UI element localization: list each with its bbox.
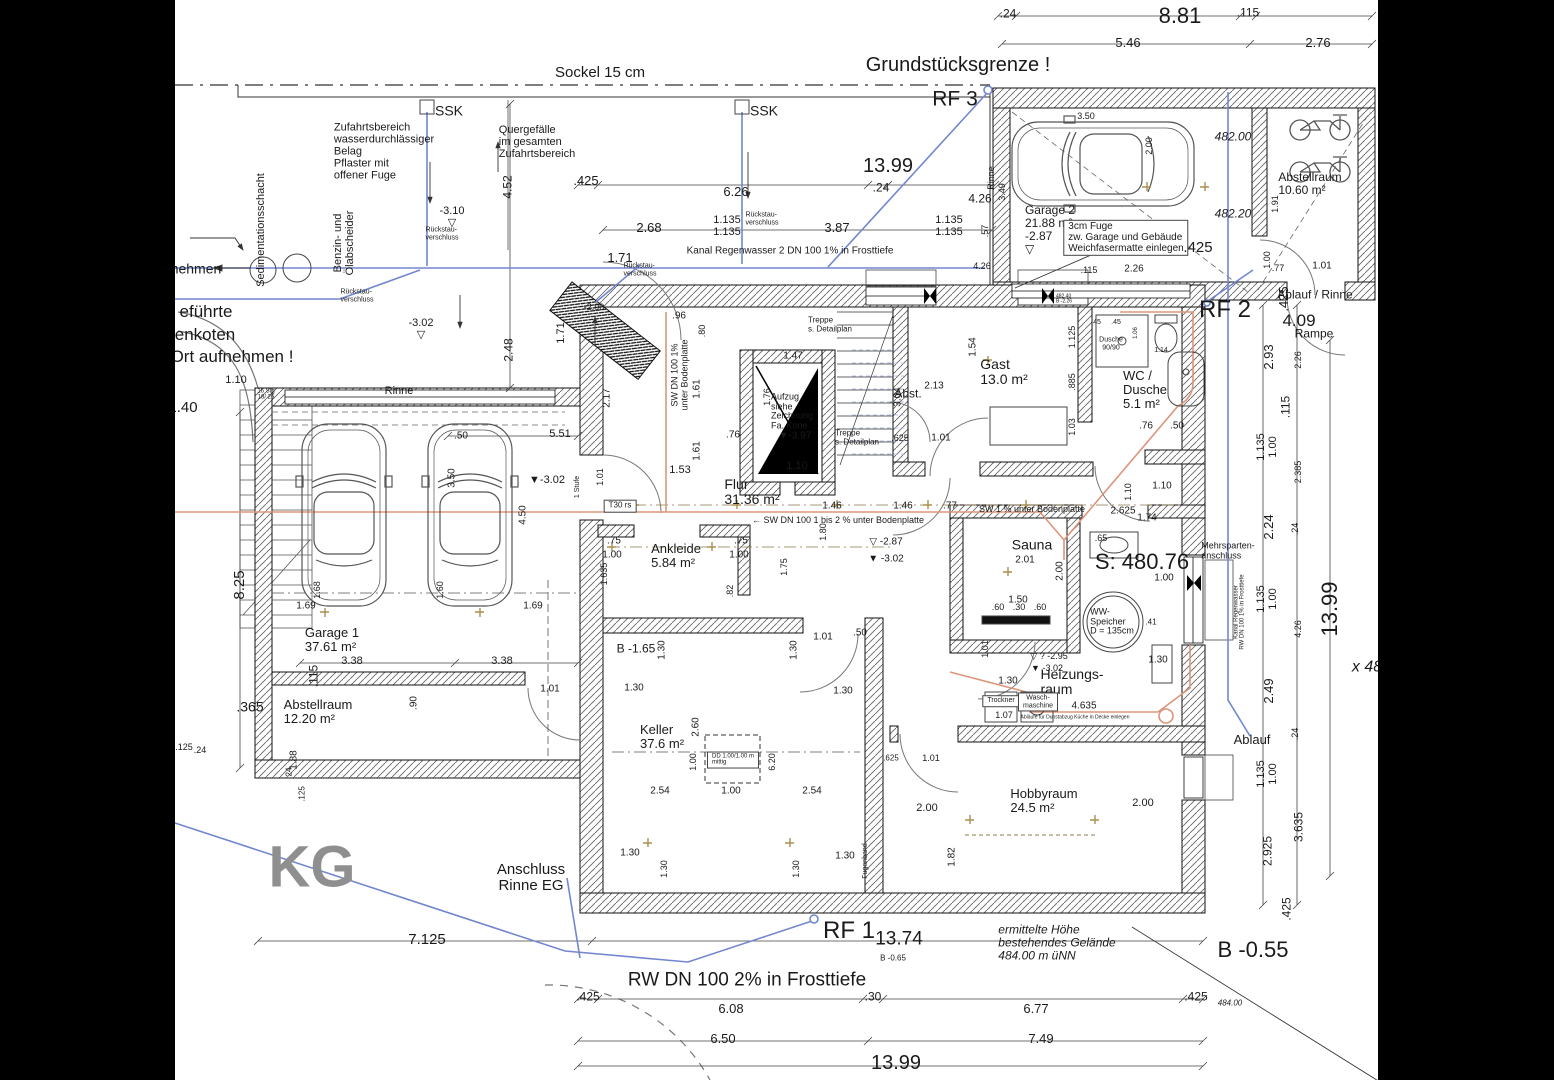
dim-label: 1.00 bbox=[1268, 436, 1280, 457]
labels-layer: .248.81.1155.462.76Sockel 15 cmGrundstüc… bbox=[0, 0, 1554, 1080]
dim-label: 1.01 bbox=[540, 685, 559, 696]
dim-label: 482.00 bbox=[1215, 131, 1252, 144]
dim-label: 1.91 bbox=[1271, 195, 1281, 213]
dim-label: 3.04 bbox=[894, 387, 905, 406]
dim-label: 6.77 bbox=[1023, 1002, 1048, 1016]
dim-label: .885 bbox=[1068, 373, 1078, 391]
dim-label: 1.30 bbox=[998, 677, 1017, 688]
dim-label: 1.01 bbox=[922, 754, 940, 764]
dim-label: .115 bbox=[308, 665, 321, 687]
dim-label: 484.00 bbox=[1218, 1000, 1242, 1009]
dim-label: 4.635 bbox=[1071, 702, 1096, 713]
dim-label: 2.00 bbox=[916, 803, 937, 815]
elevation-s-48076: S: 480.76 bbox=[1095, 550, 1189, 574]
dim-label: 1.68 bbox=[313, 581, 323, 599]
dim-label: .24 bbox=[873, 182, 890, 195]
note-sockel: Sockel 15 cm bbox=[555, 65, 645, 81]
dim-label: .75 bbox=[607, 537, 621, 548]
dim-label: 2.13 bbox=[924, 382, 943, 393]
dim-label: .425 bbox=[1277, 286, 1291, 311]
dim-label: 2.00 bbox=[1056, 561, 1067, 580]
dim-label: .60 bbox=[1034, 603, 1047, 613]
dim-label: 1.30 bbox=[1148, 656, 1167, 667]
room-wc-dusche: WC / Dusche 5.1 m² bbox=[1123, 369, 1167, 411]
dim-label: .115 bbox=[1081, 266, 1098, 276]
dim-label: 1.30 bbox=[835, 852, 854, 863]
dim-label: .82 bbox=[726, 585, 736, 598]
fixture-trockner: Trockner bbox=[982, 695, 1019, 707]
dim-label: ▼-3.02 bbox=[529, 475, 565, 487]
note-sw-dn100-flur: ← SW DN 100 1 bis 2 % unter Bodenplatte bbox=[752, 516, 924, 526]
dim-label: 1.30 bbox=[620, 849, 639, 860]
dim-label: 1.80 bbox=[819, 523, 829, 541]
dim-label: 3.87 bbox=[824, 221, 849, 235]
dim-label: 13.99 bbox=[863, 156, 913, 178]
dim-label: SSK bbox=[750, 103, 778, 118]
dim-label: 3.49 bbox=[998, 183, 1008, 201]
note-3cm-fuge: 3cm Fuge zw. Garage und Gebäude Weichfas… bbox=[1063, 220, 1188, 256]
dim-label: 1.00 bbox=[721, 787, 740, 798]
dim-label: Fugenband bbox=[862, 843, 870, 878]
room-abstellraum-kg: Abstellraum 12.20 m² bbox=[284, 698, 353, 726]
rf-1-marker: RF 1 bbox=[823, 918, 875, 944]
dim-label: 1.635 bbox=[600, 563, 610, 586]
dim-label: .365 bbox=[236, 699, 263, 714]
dim-label: 7.49 bbox=[1028, 1032, 1053, 1046]
dim-label: 1.75 bbox=[780, 558, 790, 576]
dim-label: 1.06 bbox=[1133, 327, 1139, 339]
dim-label: .80 bbox=[698, 325, 708, 338]
dim-label: .625 bbox=[883, 755, 899, 764]
dim-label: 1.30 bbox=[624, 684, 643, 695]
note-sw-dn100-vert: SW DN 100 1% unter Bodenplatte bbox=[670, 339, 689, 410]
dim-label: 1.03 bbox=[1068, 418, 1078, 436]
dim-label: 8.25 bbox=[232, 570, 248, 599]
dim-label: 1.00 bbox=[729, 551, 748, 562]
dim-label: .115 bbox=[1237, 7, 1259, 20]
dim-label: 2.93 bbox=[1262, 344, 1276, 369]
dim-label: 1.10 bbox=[225, 375, 246, 387]
dim-label: 2.68 bbox=[636, 221, 661, 235]
note-zufahrtsbereich: Zufahrtsbereich wasserdurchlässiger Bela… bbox=[334, 122, 434, 181]
dim-label: 2.48 bbox=[503, 338, 516, 361]
dim-label: 1.10 bbox=[1124, 483, 1134, 501]
dim-label: 4.26 bbox=[973, 262, 991, 272]
dim-label: 2.925 bbox=[1262, 836, 1275, 866]
room-sauna: Sauna bbox=[1012, 537, 1052, 552]
dim-label: 1.125 bbox=[1068, 326, 1078, 349]
dim-label: -3.02 ▽ bbox=[408, 318, 433, 342]
dim-label: 1.135 bbox=[1256, 760, 1268, 788]
dim-label: .96 bbox=[672, 312, 686, 323]
dim-label: .30 bbox=[1013, 603, 1026, 613]
dim-label: 1.30 bbox=[790, 640, 801, 659]
dim-label: 4.26 bbox=[1294, 620, 1304, 638]
dim-label: .125 bbox=[175, 743, 193, 753]
dim-label: 3.50 bbox=[448, 468, 459, 487]
dim-label: 4.26 bbox=[968, 193, 991, 206]
dim-label: .76 bbox=[1139, 422, 1153, 433]
note-aufzug: Aufzug siehe Zeichnung Fa. Kone bbox=[771, 393, 813, 432]
note-mehrsparten: Mehrsparten- anschluss bbox=[1201, 541, 1255, 560]
dim-label: 1.46 bbox=[893, 502, 912, 513]
dim-label: 1.53 bbox=[669, 465, 690, 477]
right-black-bar bbox=[1378, 0, 1554, 1080]
dim-label: SSK bbox=[435, 103, 463, 118]
floor-title: KG bbox=[269, 837, 356, 900]
dim-label: Ort aufnehmen ! bbox=[171, 348, 294, 366]
dim-label: 4.50 bbox=[519, 505, 530, 524]
dim-label: 1.01 bbox=[1312, 262, 1331, 273]
dim-label: 1.47 bbox=[783, 352, 802, 363]
dim-label: 482.40 B -2.26 bbox=[1056, 295, 1072, 306]
dim-label: 1.69 bbox=[296, 602, 315, 613]
dim-label: 2.625 bbox=[1110, 507, 1135, 518]
dim-label: 1.10 bbox=[786, 461, 807, 473]
dim-label: Abläufe für Dunstabzug Küche in Decke ei… bbox=[1021, 715, 1130, 720]
left-black-bar bbox=[0, 0, 175, 1080]
note-kanal-regenwasser: Kanal Regenwasser 2 DN 100 1% in Frostti… bbox=[687, 247, 894, 258]
note-sedimentationsschacht: Sedimentationsschacht bbox=[256, 173, 268, 287]
note-rampe: Rampe bbox=[1295, 328, 1334, 341]
note-ermittelte-hoehe: ermittelte Höhe bestehendes Gelände 484.… bbox=[998, 924, 1115, 963]
dim-label: 2.54 bbox=[802, 787, 821, 798]
dim-label: 1.135 1.135 bbox=[713, 215, 741, 239]
dim-label: enkoten bbox=[175, 326, 236, 344]
note-rw-dn100: RW DN 100 2% in Frosttiefe bbox=[628, 971, 866, 992]
dim-label: 1.88 bbox=[290, 750, 301, 769]
note-ablauf: Ablauf bbox=[1234, 733, 1271, 747]
dim-label: 6.50 bbox=[710, 1032, 735, 1046]
dim-label: T30 rs bbox=[604, 500, 637, 513]
dim-label: Kanal Regenwasser RW DN 100 1% in Frostt… bbox=[1234, 574, 1247, 649]
dim-label: .50 bbox=[1170, 422, 1184, 433]
dim-label: 1.60 bbox=[436, 581, 446, 599]
dim-label: ▽ -2.87 bbox=[869, 538, 902, 549]
dim-label: 3.635 bbox=[1293, 812, 1306, 842]
dim-label: nehmen bbox=[171, 261, 222, 276]
dim-label: .77 bbox=[1272, 264, 1285, 274]
note-ablauf-rinne: Ablauf / Rinne bbox=[1277, 289, 1352, 302]
fixture-waschmaschine: Wasch- maschine bbox=[1018, 692, 1058, 711]
dim-label: 1.82 bbox=[948, 847, 959, 866]
dim-label: 2.01 bbox=[1015, 556, 1034, 567]
dim-label: 2.385 bbox=[1294, 461, 1304, 484]
note-treppe-1: Treppe s. Detailplan bbox=[808, 316, 852, 333]
dim-label: .50 bbox=[454, 432, 468, 443]
dim-label: .125 bbox=[299, 786, 308, 802]
dim-label: Rückstau- verschluss bbox=[340, 288, 373, 303]
dim-label: 2.17 bbox=[603, 388, 614, 407]
dim-label: 1.71 bbox=[607, 251, 632, 265]
dim-label: -2.90 bbox=[584, 303, 605, 313]
dim-label: Rückstau- verschluss bbox=[623, 262, 656, 277]
dim-label: .425 bbox=[576, 991, 599, 1004]
dim-label: 6.26 bbox=[723, 185, 748, 199]
dim-label: 2.49 bbox=[1262, 678, 1276, 703]
dim-label: 1.00 bbox=[689, 753, 699, 771]
dim-label: 1.54 bbox=[969, 337, 980, 356]
floorplan-page: .248.81.1155.462.76Sockel 15 cmGrundstüc… bbox=[0, 0, 1554, 1080]
dim-label: Rinne bbox=[385, 386, 414, 398]
dim-label: .425 bbox=[1281, 897, 1294, 920]
dim-label: .425 bbox=[573, 174, 598, 188]
dim-label: 24 bbox=[286, 768, 295, 777]
dim-label: B -1.65 bbox=[617, 643, 656, 656]
dim-label: .625 bbox=[891, 434, 909, 444]
dim-label: 1.71 bbox=[556, 322, 568, 343]
dim-label: Rückstau- verschluss bbox=[745, 211, 778, 226]
dim-label: 1.01 bbox=[596, 468, 606, 486]
dim-label: .425 bbox=[1184, 991, 1207, 1004]
dim-label: 16 Stg 18/ 26 bbox=[257, 389, 274, 402]
dim-label: .60 bbox=[992, 603, 1005, 613]
dim-label: .425 bbox=[1183, 240, 1212, 256]
note-oelabscheider: Benzin- und Ölabscheider bbox=[333, 211, 357, 276]
dim-label: .75 bbox=[734, 537, 748, 548]
room-ankleide: Ankleide 5.84 m² bbox=[651, 542, 701, 570]
room-abstellraum-og: Abstellraum 10.60 m² bbox=[1278, 171, 1341, 197]
dim-label: .45 bbox=[1091, 319, 1101, 327]
dim-label: 1.61 bbox=[693, 441, 704, 460]
dim-label: -3.10 ▽ bbox=[439, 206, 464, 230]
room-gast: Gast 13.0 m² bbox=[980, 357, 1027, 387]
dim-label: 1.01 bbox=[931, 434, 950, 445]
dim-label: 2.26 bbox=[1294, 351, 1304, 369]
dim-label: 2.60 bbox=[692, 717, 703, 736]
dim-label: 1.74 bbox=[1137, 514, 1156, 525]
room-keller: Keller 37.6 m² bbox=[640, 723, 684, 751]
dim-label: 1.50 bbox=[1008, 596, 1027, 607]
note-sw-1pct: SW 1 % unter Bodenplatte bbox=[979, 505, 1085, 515]
dim-label: Rinne bbox=[987, 166, 997, 190]
dim-label: Dusche 90/90 bbox=[1099, 336, 1123, 351]
dim-label: Rückstau- verschluss bbox=[425, 226, 458, 241]
dim-label: 1.69 bbox=[523, 602, 542, 613]
dim-label: DD 1.00/1.00 m mittig bbox=[707, 752, 759, 769]
dim-label: ▼-3.97 bbox=[779, 432, 812, 443]
room-hobbyraum: Hobbyraum 24.5 m² bbox=[1010, 787, 1077, 815]
dim-label: 1.00 bbox=[1268, 763, 1280, 784]
rf-3-marker: RF 3 bbox=[932, 89, 978, 112]
dim-label: 1.61 bbox=[693, 379, 704, 398]
dim-label: 6.08 bbox=[718, 1002, 743, 1016]
dim-label: B -0.65 bbox=[880, 955, 906, 964]
dim-label: 3.38 bbox=[341, 656, 362, 668]
dim-label: 3.50 bbox=[1077, 112, 1095, 122]
dim-label: 1.30 bbox=[660, 860, 670, 878]
dim-label: 1.00 bbox=[1154, 574, 1173, 585]
dim-label: 13.74 bbox=[875, 930, 923, 951]
note-treppe-2: Treppe s. Detailplan bbox=[835, 429, 879, 446]
dim-label: 7.125 bbox=[408, 932, 446, 948]
dim-label: 1.76 bbox=[763, 388, 773, 406]
dim-label: .24 bbox=[1000, 8, 1017, 21]
dim-label: .77 bbox=[943, 502, 957, 513]
dim-label: .24 bbox=[1291, 728, 1301, 741]
dim-label: 1.135 bbox=[1256, 585, 1268, 613]
room-abst: Abst. bbox=[894, 388, 921, 401]
dim-label: 2.00 bbox=[1145, 137, 1155, 155]
dim-label: ▼ -3.02 bbox=[1031, 664, 1063, 674]
dim-label: 1.01 bbox=[813, 633, 832, 644]
dim-label: eführte bbox=[180, 303, 233, 321]
dim-label: 2.76 bbox=[1305, 36, 1330, 50]
dim-label: .24 bbox=[194, 746, 207, 756]
dim-label: .65 bbox=[1095, 534, 1108, 544]
dim-label: 2.26 bbox=[1124, 265, 1143, 276]
dim-label: 1 Stufe bbox=[574, 476, 582, 498]
dim-label: 2.00 bbox=[1132, 798, 1153, 810]
room-flur: Flur 31.36 m² bbox=[724, 477, 779, 507]
dim-label: 3.38 bbox=[491, 656, 512, 668]
dim-label: 1.00 bbox=[1268, 588, 1280, 609]
fixture-ww-speicher: WW- Speicher D = 135cm bbox=[1090, 607, 1134, 636]
dim-label: 2.54 bbox=[650, 787, 669, 798]
dim-label: 1.14 bbox=[1154, 347, 1168, 355]
room-garage-2: Garage 2 21.88 m² -2.87 ▽ bbox=[1025, 204, 1075, 256]
dim-label: 1.135 1.135 bbox=[935, 215, 963, 239]
dim-label: 13.99 bbox=[871, 1053, 921, 1075]
dim-label: 1.00 bbox=[602, 551, 621, 562]
dim-label: .76 bbox=[726, 431, 740, 442]
dim-label: 1.135 bbox=[1256, 433, 1268, 461]
dim-label: 5.51 bbox=[549, 429, 570, 441]
dim-label: 1.30 bbox=[792, 860, 802, 878]
dim-label: 482.20 bbox=[1215, 208, 1252, 221]
dim-label: ▽ ? -2.95 bbox=[1030, 652, 1067, 662]
dim-label: 8.81 bbox=[1159, 4, 1202, 28]
dim-label: 1.01 bbox=[981, 640, 991, 658]
dim-label: .41 bbox=[1145, 619, 1156, 628]
note-quergefaelle: Quergefälle im gesamten Zufahrtsbereich bbox=[499, 125, 575, 161]
dim-label: 4.09 bbox=[1282, 312, 1315, 330]
room-heizungsraum: Heizungs- raum bbox=[1040, 667, 1103, 697]
dim-label: 1.30 bbox=[833, 687, 852, 698]
dim-label: .50 bbox=[853, 629, 867, 640]
dim-label: .24 bbox=[1291, 523, 1301, 536]
note-anschluss-rinne: Anschluss Rinne EG bbox=[497, 862, 565, 894]
dim-label: 1.10 bbox=[1152, 482, 1171, 493]
dim-label: 2.24 bbox=[1262, 514, 1276, 539]
dim-label: 1.00 bbox=[1263, 251, 1273, 269]
dim-label: 5.46 bbox=[1115, 36, 1140, 50]
dim-label: .57 bbox=[981, 225, 991, 238]
dim-label: .115 bbox=[1280, 396, 1293, 418]
benchmark-b-055: B -0.55 bbox=[1218, 938, 1289, 962]
dim-label: 1.46 bbox=[822, 502, 841, 513]
dim-label: 1.30 bbox=[658, 640, 669, 659]
dim-label: .30 bbox=[865, 991, 882, 1004]
dim-label: .45 bbox=[1111, 319, 1121, 327]
note-grundstuecksgrenze: Grundstücksgrenze ! bbox=[866, 55, 1051, 77]
room-garage-1: Garage 1 37.61 m² bbox=[305, 626, 359, 654]
dim-label: 4.52 bbox=[502, 175, 515, 198]
dim-label: 1.07 bbox=[995, 711, 1013, 721]
rf-2-marker: RF 2 bbox=[1199, 297, 1251, 323]
dim-label: 6.20 bbox=[768, 753, 778, 771]
dim-label: 13.99 bbox=[1318, 581, 1342, 636]
dim-label: .90 bbox=[410, 696, 421, 710]
dim-label: ▼ -3.02 bbox=[868, 555, 903, 566]
